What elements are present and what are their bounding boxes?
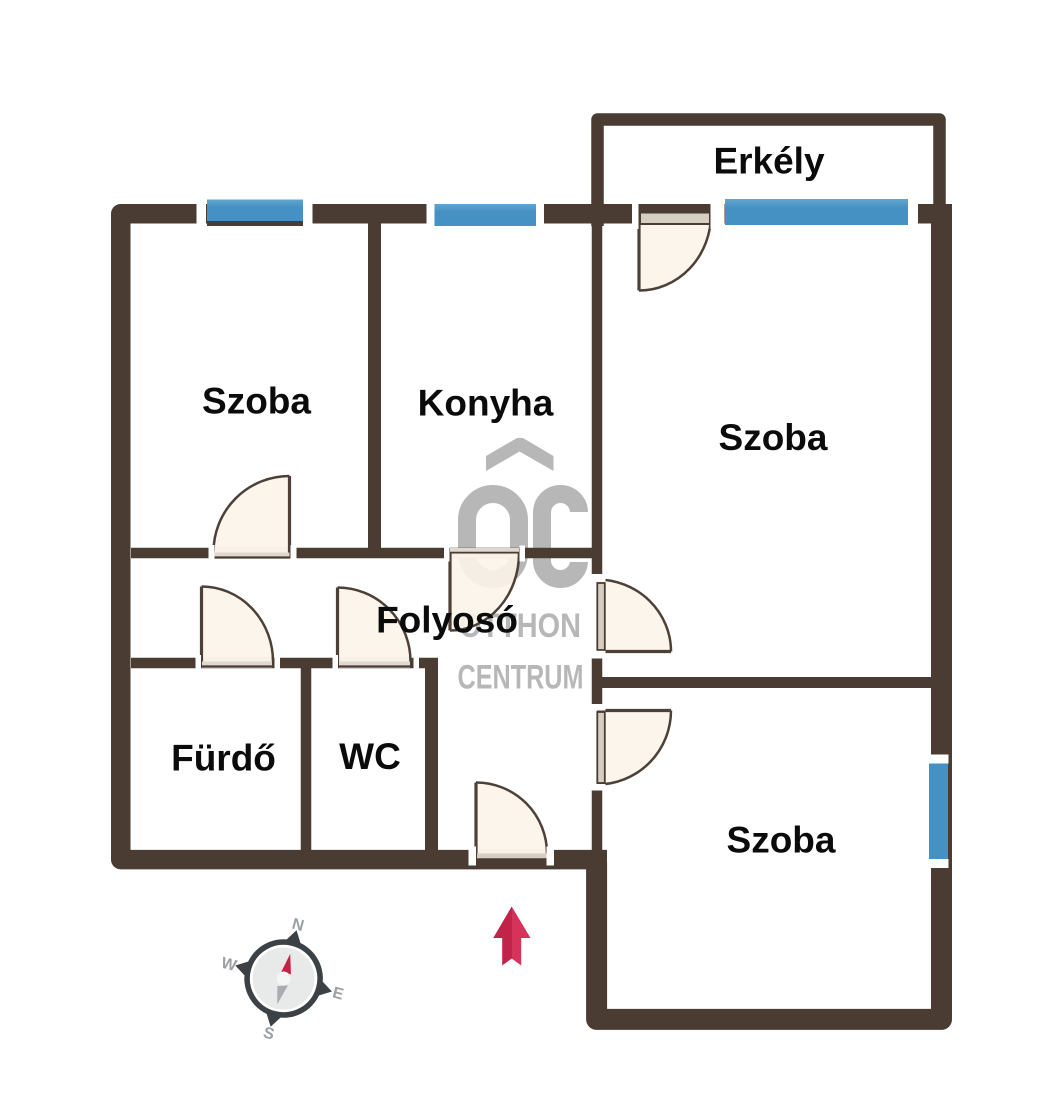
svg-text:Erkély: Erkély xyxy=(713,141,825,182)
svg-text:WC: WC xyxy=(339,736,401,777)
svg-text:Konyha: Konyha xyxy=(418,383,554,424)
svg-text:Szoba: Szoba xyxy=(719,417,828,458)
svg-text:Szoba: Szoba xyxy=(202,381,311,422)
svg-text:CENTRUM: CENTRUM xyxy=(458,659,584,697)
svg-text:Fürdő: Fürdő xyxy=(171,738,276,779)
svg-text:Szoba: Szoba xyxy=(727,820,836,861)
svg-text:Folyosó: Folyosó xyxy=(376,600,518,641)
